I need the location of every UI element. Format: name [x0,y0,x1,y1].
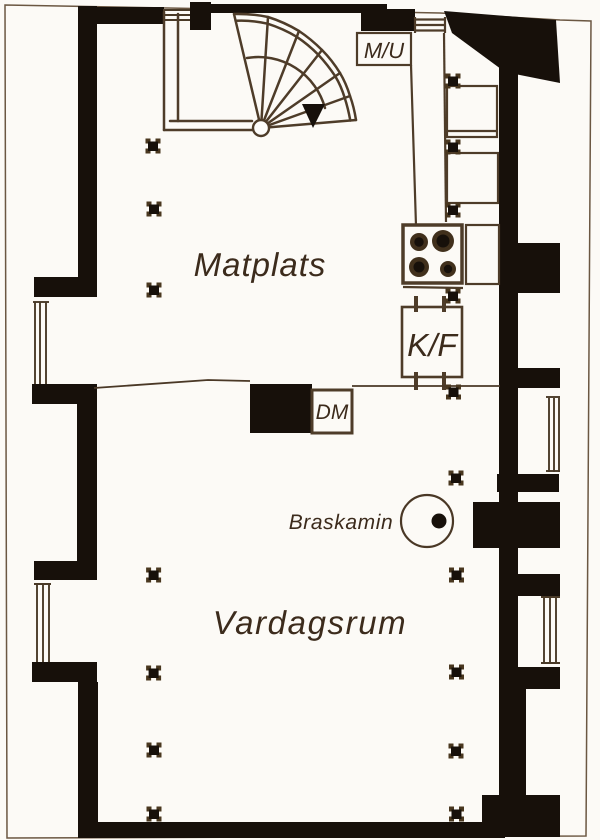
svg-text:Vardagsrum: Vardagsrum [213,604,408,641]
svg-text:DM: DM [316,401,349,424]
svg-text:M/U: M/U [364,38,404,63]
svg-text:K/F: K/F [407,327,459,363]
svg-text:Braskamin: Braskamin [289,511,394,534]
svg-text:Matplats: Matplats [194,246,327,283]
